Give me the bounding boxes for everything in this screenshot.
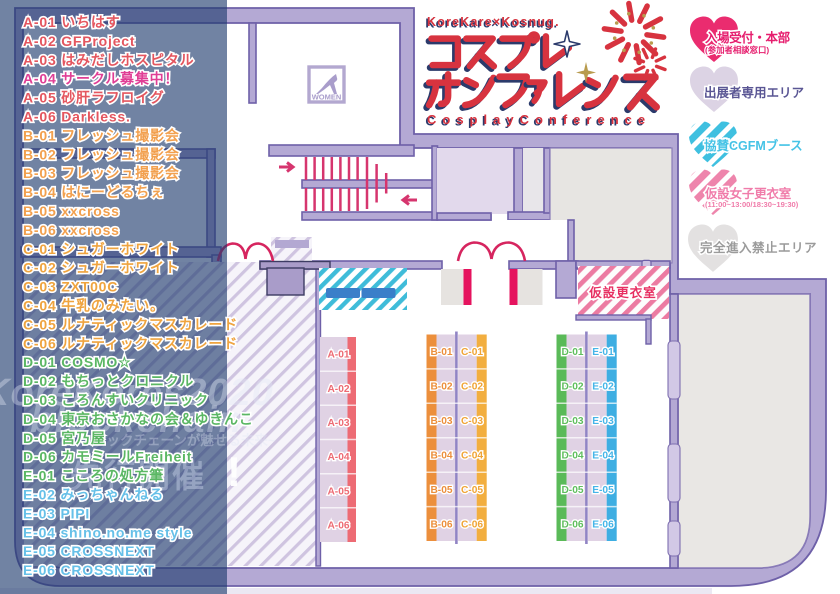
svg-text:C-02 シュガーホワイト: C-02 シュガーホワイト <box>23 260 180 276</box>
svg-text:D-04 東京おさかなの会＆ゆきんこ: D-04 東京おさかなの会＆ゆきんこ <box>23 411 254 427</box>
svg-text:D-02: D-02 <box>561 382 583 393</box>
svg-text:A-03 はみだしホスピタル: A-03 はみだしホスピタル <box>23 52 194 68</box>
svg-text:D-03 ころんすいクリニック: D-03 ころんすいクリニック <box>23 392 209 408</box>
svg-text:D-05 宮乃屋: D-05 宮乃屋 <box>23 430 106 446</box>
svg-text:CosplayConference: CosplayConference <box>427 112 651 127</box>
svg-text:C-01: C-01 <box>461 347 483 358</box>
svg-text:A-05 砂肝ラフロイグ: A-05 砂肝ラフロイグ <box>23 90 165 106</box>
svg-text:D-05: D-05 <box>561 485 583 496</box>
svg-text:D-03: D-03 <box>561 416 583 427</box>
svg-text:E-02 みっちゃんねる: E-02 みっちゃんねる <box>23 487 164 503</box>
svg-text:D-06 カモミールFreiheit: D-06 カモミールFreiheit <box>23 449 192 465</box>
svg-text:協賛CGFMブース: 協賛CGFMブース <box>704 138 803 153</box>
svg-text:WOMEN: WOMEN <box>312 93 342 102</box>
svg-text:B-02 フレッシュ撮影会: B-02 フレッシュ撮影会 <box>23 146 180 162</box>
svg-text:E-06 CROSSNEXT: E-06 CROSSNEXT <box>23 562 155 578</box>
svg-text:仮設女子更衣室: 仮設女子更衣室 <box>704 186 792 201</box>
svg-text:A-03: A-03 <box>327 418 349 429</box>
svg-text:B-05 xxcross: B-05 xxcross <box>23 203 120 219</box>
svg-text:!: ! <box>227 448 241 495</box>
svg-text:A-04: A-04 <box>327 452 349 463</box>
svg-text:A-06: A-06 <box>327 520 349 531</box>
svg-text:D-02 もちっとクロニクル: D-02 もちっとクロニクル <box>23 373 194 389</box>
svg-text:A-01 いちはす: A-01 いちはす <box>23 14 120 30</box>
svg-text:入場受付・本部: 入場受付・本部 <box>705 30 791 45</box>
svg-text:A-01: A-01 <box>327 350 349 361</box>
svg-text:E-04: E-04 <box>592 450 614 461</box>
svg-text:B-06 xxcross: B-06 xxcross <box>23 222 120 238</box>
svg-text:B-06: B-06 <box>430 519 452 530</box>
svg-text:C-02: C-02 <box>461 382 483 393</box>
svg-text:B-03: B-03 <box>430 416 452 427</box>
svg-text:C-03: C-03 <box>461 416 483 427</box>
svg-text:E-01 こころの処方筆: E-01 こころの処方筆 <box>23 468 164 484</box>
svg-text:A-05: A-05 <box>327 486 349 497</box>
svg-text:C-04 牛乳のみたい。: C-04 牛乳のみたい。 <box>23 298 165 314</box>
svg-text:E-01: E-01 <box>592 347 614 358</box>
svg-text:C-01 シュガーホワイト: C-01 シュガーホワイト <box>23 241 180 257</box>
svg-text:D-06: D-06 <box>561 519 583 530</box>
svg-text:(参加者相談窓口): (参加者相談窓口) <box>705 45 769 55</box>
svg-text:C-05 ルナティックマスカレード: C-05 ルナティックマスカレード <box>23 316 238 332</box>
svg-text:A-06 Darkless.: A-06 Darkless. <box>23 109 131 125</box>
svg-text:B-03 フレッシュ撮影会: B-03 フレッシュ撮影会 <box>23 165 180 181</box>
svg-text:B-05: B-05 <box>430 485 452 496</box>
svg-text:B-01 フレッシュ撮影会: B-01 フレッシュ撮影会 <box>23 127 180 143</box>
svg-text:B-01: B-01 <box>430 347 452 358</box>
svg-text:C-03 ZXT00C: C-03 ZXT00C <box>23 279 118 295</box>
svg-text:A-02: A-02 <box>327 384 349 395</box>
svg-text:仮設更衣室: 仮設更衣室 <box>588 285 657 300</box>
svg-text:C-06 ルナティックマスカレード: C-06 ルナティックマスカレード <box>23 335 238 351</box>
svg-text:E-05 CROSSNEXT: E-05 CROSSNEXT <box>23 543 155 559</box>
svg-text:D-01 COSMO☆: D-01 COSMO☆ <box>23 354 131 370</box>
svg-text:C-05: C-05 <box>461 485 483 496</box>
svg-text:B-04 はにーどるちぇ: B-04 はにーどるちぇ <box>23 184 165 200</box>
svg-text:C-06: C-06 <box>461 519 483 530</box>
svg-text:E-05: E-05 <box>592 485 614 496</box>
svg-text:E-03 PIPI: E-03 PIPI <box>23 505 90 521</box>
svg-text:完全進入禁止エリア: 完全進入禁止エリア <box>700 240 817 255</box>
svg-text:ロックチェーンが魅せる未来~: ロックチェーンが魅せる未来~ <box>93 432 276 448</box>
svg-text:E-06: E-06 <box>592 519 614 530</box>
svg-text:D-01: D-01 <box>561 347 583 358</box>
svg-text:E-04 shino.no.me style: E-04 shino.no.me style <box>23 524 192 540</box>
svg-text:D-04: D-04 <box>561 450 583 461</box>
svg-text:A-04 サークル募集中！: A-04 サークル募集中！ <box>23 71 179 87</box>
svg-text:KoreKare×Kosnug.: KoreKare×Kosnug. <box>427 15 560 29</box>
svg-text:E-02: E-02 <box>592 382 614 393</box>
svg-text:A-02 GFProject: A-02 GFProject <box>23 33 135 49</box>
svg-text:E-03: E-03 <box>592 416 614 427</box>
svg-text:C-04: C-04 <box>461 450 483 461</box>
svg-text:出展者専用エリア: 出展者専用エリア <box>704 85 804 100</box>
svg-text:B-04: B-04 <box>430 450 452 461</box>
svg-text:B-02: B-02 <box>430 382 452 393</box>
svg-text:(11:00~13:00/18:30~19:30): (11:00~13:00/18:30~19:30) <box>705 200 799 209</box>
